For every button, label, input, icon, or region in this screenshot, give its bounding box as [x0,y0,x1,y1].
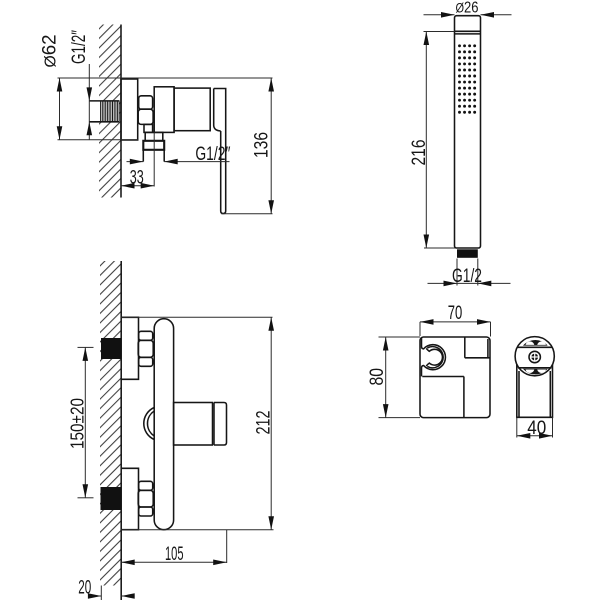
svg-text:G1/2″: G1/2″ [195,144,230,165]
svg-text:105: 105 [165,544,184,565]
svg-text:150±20: 150±20 [68,398,88,449]
svg-text:80: 80 [367,368,388,386]
svg-text:G1/2″: G1/2″ [69,30,90,64]
svg-text:Ø26: Ø26 [456,0,479,17]
svg-text:136: 136 [252,132,273,158]
svg-text:70: 70 [448,303,463,324]
svg-text:20: 20 [78,578,91,599]
svg-text:216: 216 [409,140,430,166]
svg-text:212: 212 [254,411,275,435]
svg-text:G1/2: G1/2 [452,266,482,287]
svg-text:33: 33 [130,168,144,189]
svg-text:40: 40 [527,418,546,439]
svg-text:Ø62: Ø62 [40,35,61,68]
